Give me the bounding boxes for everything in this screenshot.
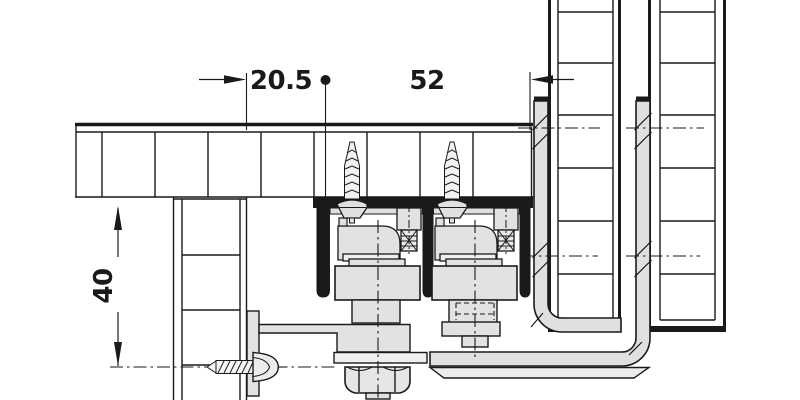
screw-head xyxy=(253,353,278,382)
arrowhead-right xyxy=(224,75,246,84)
bottom-guide-bar xyxy=(430,368,649,379)
drawing-canvas: 20.5 52 40 xyxy=(0,0,800,400)
top-panel-core-joints xyxy=(102,132,473,197)
track-fin-rear xyxy=(520,205,531,298)
track-fin-front xyxy=(317,205,331,298)
technical-drawing: 20.5 52 40 xyxy=(0,0,800,400)
dimension-label-40: 40 xyxy=(89,268,119,303)
dimension-label-20-5: 20.5 xyxy=(250,66,312,96)
panel-screw-1 xyxy=(337,142,367,223)
side-panel-core-joints xyxy=(182,255,240,365)
arrowhead-down xyxy=(114,342,122,366)
roller-assembly-2 xyxy=(432,204,518,358)
door-2-bottom-edge xyxy=(648,326,726,332)
lock-washer-plate xyxy=(334,353,427,364)
dimension-dot xyxy=(321,75,331,85)
suspension-profile-1 xyxy=(531,97,621,333)
panel-screw-2 xyxy=(437,142,467,223)
door-panel-2 xyxy=(648,0,726,332)
arrowhead-up xyxy=(114,206,122,230)
screw-tip xyxy=(207,361,216,373)
dimension-label-52: 52 xyxy=(409,66,444,96)
door-2-core-joints xyxy=(660,12,715,274)
arrowhead-left xyxy=(531,75,553,84)
hanger-plate-2 xyxy=(442,322,500,336)
top-panel xyxy=(75,124,537,197)
door-panel-1 xyxy=(548,0,621,332)
door-1-core-joints xyxy=(558,12,613,274)
